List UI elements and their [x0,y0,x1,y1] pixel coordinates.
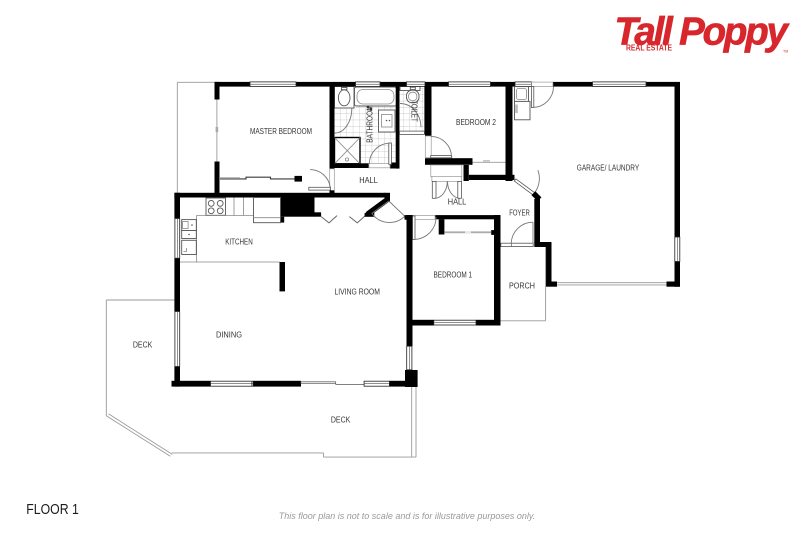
svg-text:DINING: DINING [216,330,242,339]
svg-text:BATHROOM: BATHROOM [365,105,374,143]
svg-text:GARAGE/ LAUNDRY: GARAGE/ LAUNDRY [577,164,640,173]
svg-text:HALL: HALL [359,176,378,185]
svg-text:BEDROOM 2: BEDROOM 2 [456,118,496,127]
svg-text:This floor plan is not to scal: This floor plan is not to scale and is f… [279,511,535,521]
svg-text:TOILET: TOILET [410,100,419,122]
svg-text:PORCH: PORCH [509,281,535,290]
svg-text:BEDROOM 1: BEDROOM 1 [434,271,473,280]
svg-text:DECK: DECK [331,415,351,424]
svg-text:DECK: DECK [133,340,153,349]
svg-text:HALL: HALL [448,198,467,207]
svg-text:TM: TM [783,50,788,54]
svg-text:MASTER BEDROOM: MASTER BEDROOM [250,127,312,136]
svg-text:LIVING ROOM: LIVING ROOM [334,288,380,297]
svg-text:REAL ESTATE: REAL ESTATE [626,44,673,53]
svg-text:FOYER: FOYER [509,208,530,217]
svg-text:KITCHEN: KITCHEN [225,238,253,247]
svg-text:FLOOR 1: FLOOR 1 [26,501,79,518]
